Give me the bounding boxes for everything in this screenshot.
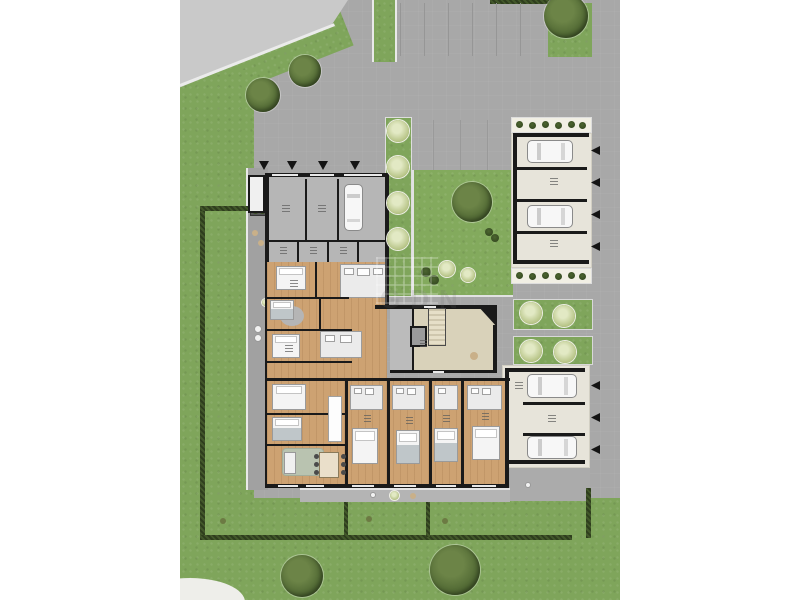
window-gap: [394, 485, 416, 487]
hedge-bottom: [200, 535, 572, 540]
grass-bottom: [180, 498, 620, 600]
bush-dark: [491, 234, 499, 242]
parking-line: [487, 120, 488, 170]
terrace-item: [525, 482, 531, 488]
terrace-east: [510, 468, 590, 501]
interior-wall: [319, 297, 321, 331]
tree-large: [452, 182, 492, 222]
carport-divider: [523, 402, 585, 405]
tree-round-light: [553, 305, 575, 327]
garden-mark: [220, 518, 226, 524]
tree-large: [289, 55, 321, 87]
stall-label-mark: [550, 178, 558, 186]
unit-divider-wall: [461, 380, 464, 484]
carport-divider: [517, 231, 587, 234]
chair: [341, 462, 346, 467]
carport-wall: [513, 133, 589, 137]
building-wall-garage-east: [385, 173, 389, 267]
room-label-mark: [406, 417, 413, 424]
tech-room-floor: [390, 309, 412, 370]
bath-fixture: [438, 388, 446, 394]
room-label-mark: [364, 415, 371, 422]
hedge-right: [586, 488, 591, 538]
room-label-mark: [282, 205, 290, 213]
parking-line: [433, 120, 434, 170]
window-gap: [472, 485, 496, 487]
room-label-mark: [420, 340, 427, 347]
shrub: [516, 272, 523, 279]
garaged-car: [344, 184, 363, 231]
bath-fixture: [357, 268, 370, 276]
room-label-mark: [340, 247, 347, 254]
dining-table: [319, 452, 339, 478]
parking-line: [460, 120, 461, 170]
room-label-mark: [280, 247, 287, 254]
room-label-mark: [443, 415, 450, 422]
parking-line: [424, 3, 425, 56]
interior-wall: [267, 361, 352, 363]
hedge-garden-divider: [426, 502, 430, 537]
stall-label-mark: [548, 415, 556, 423]
shrub: [542, 121, 549, 128]
parking-line: [472, 3, 473, 56]
patio-table: [254, 334, 262, 342]
window-gap: [436, 485, 456, 487]
unit-divider-wall: [387, 380, 390, 484]
garage-door-gap: [272, 174, 298, 176]
interior-wall: [267, 444, 347, 446]
parked-car: [527, 140, 573, 163]
bed: [352, 428, 378, 464]
garage-divider: [305, 179, 307, 240]
garden-mark: [366, 516, 372, 522]
carport-wall: [505, 368, 585, 372]
parking-line: [400, 3, 401, 56]
kitchen-counter: [328, 396, 342, 442]
shrub: [542, 272, 549, 279]
room-label-mark: [318, 205, 326, 213]
room-label-mark: [310, 247, 317, 254]
bath-fixture: [344, 268, 354, 275]
storage-divider: [357, 242, 359, 262]
hedge-garden-divider: [344, 502, 348, 537]
garage-door-gap: [310, 174, 334, 176]
parking-line: [496, 3, 497, 56]
bath-fixture: [340, 335, 352, 343]
chair: [314, 470, 319, 475]
parking-line: [448, 3, 449, 56]
bath-fixture: [354, 388, 362, 394]
bush-light: [439, 261, 455, 277]
unit-divider-wall: [429, 380, 432, 484]
patio-item: [252, 230, 258, 236]
tree-large: [281, 555, 323, 597]
shrub: [568, 121, 575, 128]
bed: [472, 426, 500, 460]
garden-mark: [442, 518, 448, 524]
hedge-left: [200, 206, 205, 537]
shrub: [579, 273, 586, 280]
bed: [434, 428, 458, 462]
lobby-door-gap: [433, 371, 444, 373]
chair: [314, 454, 319, 459]
window-gap: [278, 485, 298, 487]
room-label-mark: [290, 280, 298, 288]
storage-divider: [297, 242, 299, 262]
walkway-curb: [246, 168, 248, 490]
tree-round-light: [387, 228, 409, 250]
window-gap: [352, 485, 374, 487]
bed: [272, 384, 306, 410]
carport-divider: [517, 167, 587, 170]
chair: [314, 462, 319, 467]
terrace-item: [410, 493, 416, 499]
watermark-text: GDN: [380, 284, 468, 315]
sofa: [284, 452, 296, 474]
parked-car: [527, 205, 573, 228]
garage-divider: [337, 179, 339, 240]
shrub: [555, 122, 562, 129]
tree-round-light: [387, 120, 409, 142]
parking-line: [520, 3, 521, 56]
chair: [341, 454, 346, 459]
shrub: [568, 272, 575, 279]
terrace-south: [300, 488, 510, 502]
grass-strip-top: [372, 0, 397, 62]
interior-wall: [315, 262, 317, 297]
bed: [272, 417, 302, 441]
building-wall-east: [505, 372, 509, 484]
hedge-top: [200, 206, 248, 211]
bath-fixture: [396, 388, 404, 394]
parked-car: [527, 436, 577, 459]
patio-table: [254, 325, 262, 333]
shrub: [555, 273, 562, 280]
shrub: [529, 122, 536, 129]
garage-door-gap: [344, 174, 382, 176]
tree-round-light: [520, 340, 542, 362]
tree-round-light: [387, 192, 409, 214]
tree-round-light: [387, 156, 409, 178]
hedge-top-edge: [490, 0, 552, 4]
patio-item: [258, 240, 264, 246]
room-label-mark: [285, 345, 293, 353]
storage-wall: [267, 240, 385, 242]
tree-round-light: [554, 341, 576, 363]
lobby-wall-east: [493, 325, 497, 372]
shrub: [516, 121, 523, 128]
unit-divider-wall: [345, 380, 348, 484]
stall-label-mark: [515, 382, 523, 390]
carport-wall: [505, 460, 585, 464]
bed: [396, 430, 420, 464]
site-plan-page: GDN: [0, 0, 800, 600]
parked-car: [527, 374, 577, 398]
room-label-mark: [482, 413, 489, 420]
storage-divider: [327, 242, 329, 262]
bath-fixture: [482, 388, 491, 395]
terrace-item: [370, 492, 376, 498]
interior-wall: [267, 297, 349, 299]
bath-fixture: [471, 388, 479, 394]
tree-round-light: [520, 302, 542, 324]
site-plan: GDN: [180, 0, 620, 600]
lobby-item: [470, 352, 478, 360]
utility-room: [248, 175, 265, 213]
bath-fixture: [365, 388, 374, 395]
bath-fixture: [325, 335, 335, 342]
tree-large: [430, 545, 480, 595]
stall-label-mark: [550, 240, 558, 248]
carport-wall: [513, 260, 589, 264]
chair: [341, 470, 346, 475]
shrub: [529, 273, 536, 280]
shrub: [579, 122, 586, 129]
carport-divider: [517, 199, 587, 202]
window-gap: [306, 485, 324, 487]
bed: [270, 300, 294, 320]
tree-large: [246, 78, 280, 112]
terrace-plant: [390, 491, 399, 500]
bush-light: [461, 268, 475, 282]
bath-fixture: [407, 388, 416, 395]
